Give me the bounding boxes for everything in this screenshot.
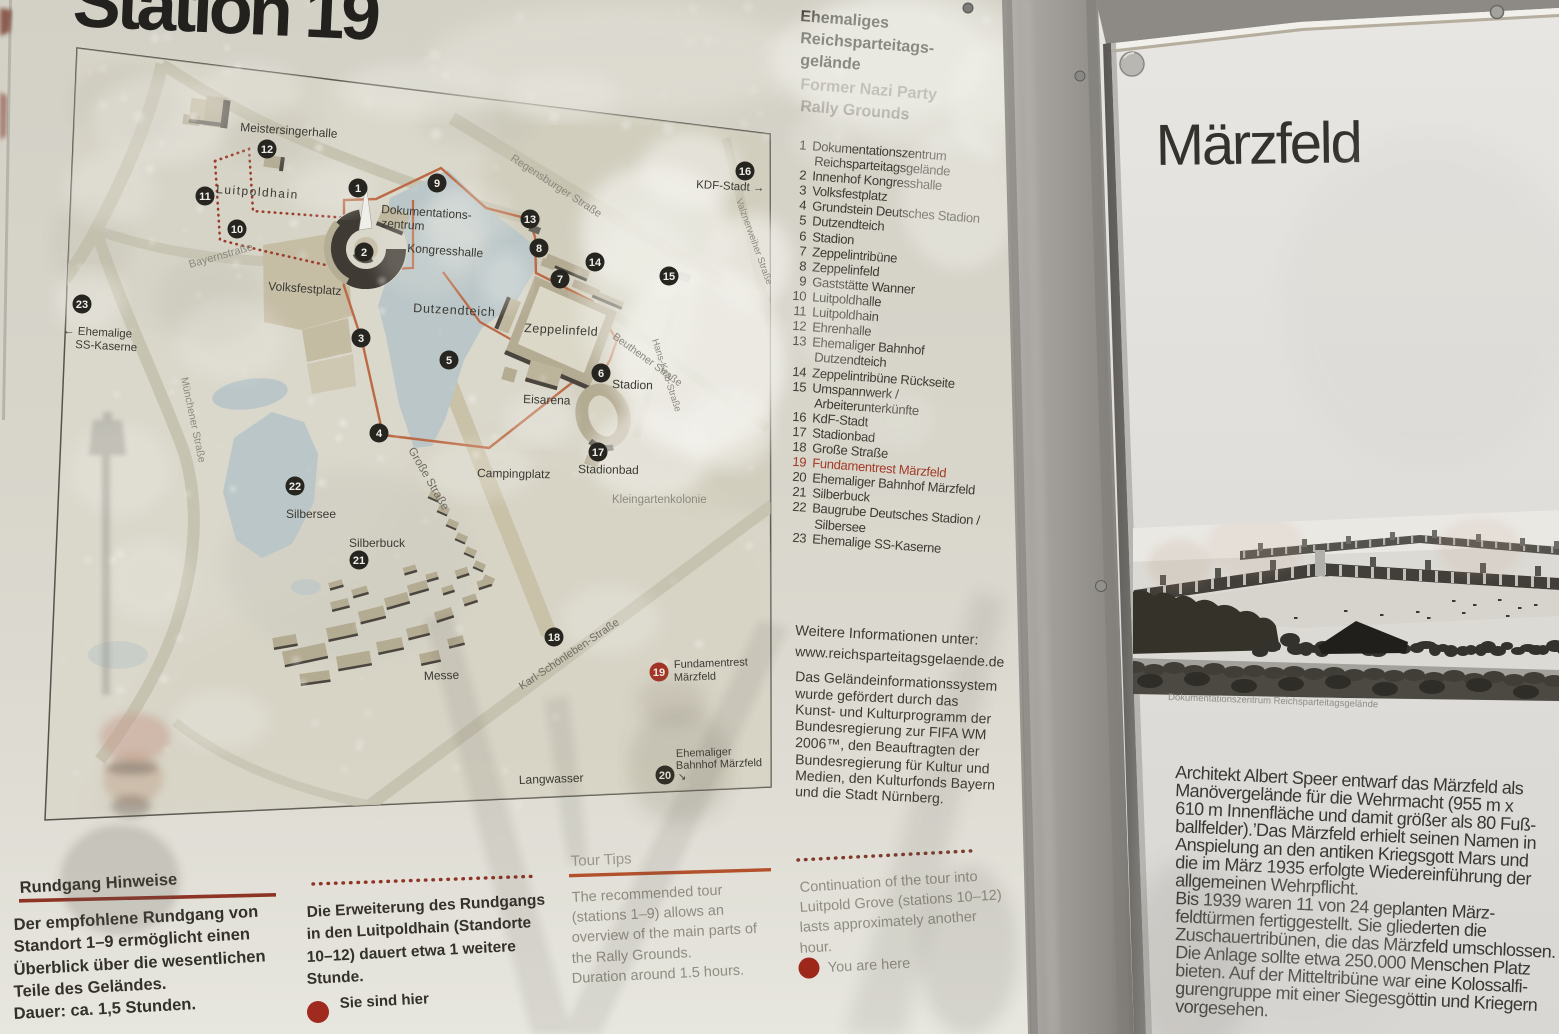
svg-text:11: 11 — [199, 191, 211, 203]
svg-text:hour.: hour. — [799, 939, 832, 957]
svg-text:Märzfeld: Märzfeld — [1155, 110, 1361, 178]
svg-text:2: 2 — [799, 167, 807, 182]
svg-text:7: 7 — [799, 243, 807, 258]
svg-text:18: 18 — [792, 439, 807, 455]
svg-text:17: 17 — [592, 447, 604, 459]
svg-text:Silbersee: Silbersee — [286, 507, 336, 521]
svg-text:8: 8 — [799, 258, 807, 273]
svg-text:22: 22 — [792, 499, 807, 515]
svg-text:19: 19 — [792, 454, 807, 470]
svg-text:4: 4 — [376, 428, 383, 440]
svg-text:16: 16 — [739, 166, 751, 178]
svg-text:Stadionbad: Stadionbad — [578, 462, 639, 477]
svg-text:15: 15 — [792, 379, 807, 395]
svg-text:9: 9 — [434, 178, 440, 190]
svg-text:14: 14 — [792, 364, 807, 380]
svg-text:14: 14 — [589, 257, 602, 269]
svg-text:16: 16 — [792, 409, 807, 425]
svg-text:Stunde.: Stunde. — [306, 968, 364, 988]
svg-text:3: 3 — [799, 182, 807, 197]
svg-text:Silberbuck: Silberbuck — [349, 536, 406, 550]
svg-text:21: 21 — [792, 484, 807, 500]
svg-text:Campingplatz: Campingplatz — [477, 466, 551, 481]
svg-text:1: 1 — [355, 183, 361, 195]
svg-text:20: 20 — [792, 469, 807, 485]
svg-text:5: 5 — [799, 212, 807, 227]
svg-text:7: 7 — [557, 274, 563, 286]
svg-text:Eisarena: Eisarena — [523, 392, 571, 408]
svg-text:17: 17 — [792, 424, 807, 440]
svg-text:21: 21 — [353, 555, 365, 567]
svg-text:6: 6 — [598, 368, 604, 380]
svg-text:22: 22 — [289, 481, 301, 493]
svg-text:13: 13 — [524, 214, 536, 226]
svg-text:5: 5 — [446, 355, 452, 367]
svg-text:4: 4 — [799, 197, 807, 212]
svg-text:15: 15 — [663, 271, 675, 283]
svg-text:Kleingartenkolonie: Kleingartenkolonie — [612, 494, 707, 506]
svg-text:23: 23 — [792, 530, 807, 546]
svg-text:2: 2 — [361, 247, 367, 259]
svg-text:23: 23 — [76, 299, 88, 311]
svg-text:10: 10 — [231, 224, 243, 236]
svg-text:8: 8 — [536, 243, 542, 255]
svg-text:18: 18 — [548, 632, 560, 644]
svg-text:3: 3 — [358, 333, 364, 345]
svg-text:Stadion: Stadion — [612, 377, 653, 392]
svg-text:12: 12 — [261, 144, 273, 156]
svg-text:6: 6 — [799, 228, 807, 243]
svg-text:19: 19 — [653, 667, 665, 679]
